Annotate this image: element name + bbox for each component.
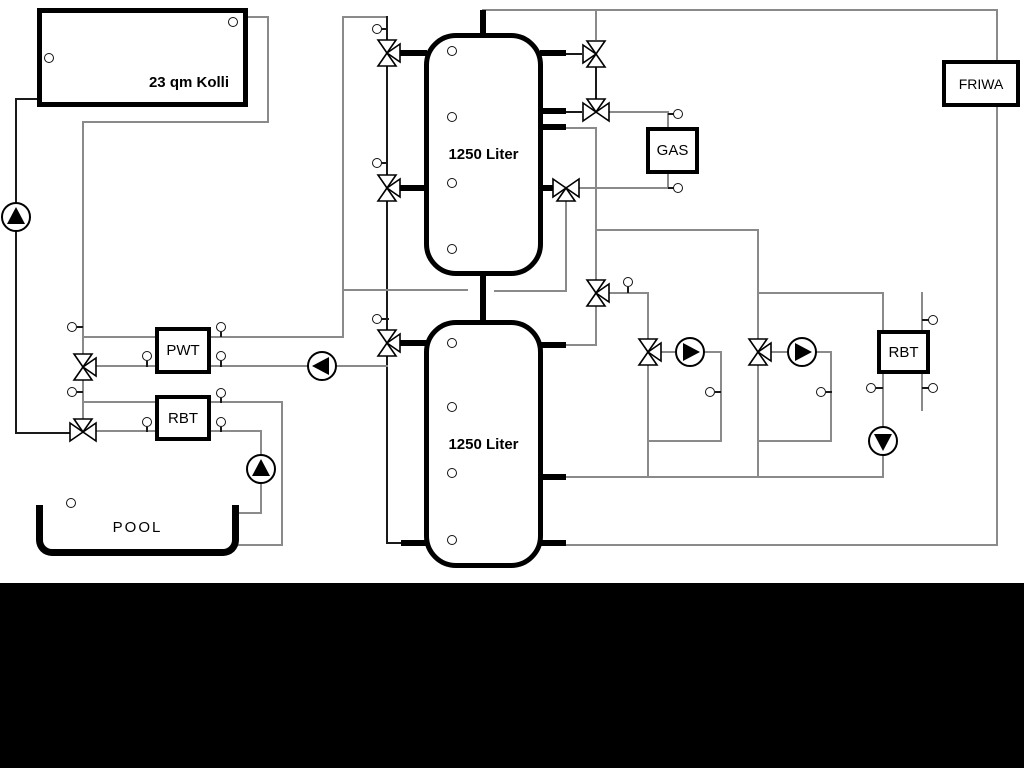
sensor-stem — [627, 287, 629, 293]
pool-pump-icon — [245, 453, 277, 485]
pipe — [595, 306, 597, 346]
tank-stub — [540, 474, 566, 480]
pipe — [757, 229, 759, 339]
sensor-port-icon — [866, 383, 876, 393]
pipe — [15, 432, 70, 434]
three-way-valve-icon — [582, 98, 610, 126]
sensor-stem — [220, 398, 222, 403]
tank-sensor-icon — [447, 402, 457, 412]
sensor-port-icon — [372, 24, 382, 34]
pipe — [565, 201, 567, 292]
sensor-stem — [220, 427, 222, 432]
tank-stub — [540, 540, 566, 546]
black-footer-band — [0, 583, 1024, 768]
buffer-tank-lower: 1250 Liter — [424, 320, 543, 568]
tank-stub — [398, 340, 427, 346]
sensor-port-icon — [928, 315, 938, 325]
sensor-port-icon — [705, 387, 715, 397]
sensor-port-icon — [228, 17, 238, 27]
pipe — [82, 336, 344, 338]
friwa-box: FRIWA — [942, 60, 1020, 107]
three-way-valve-icon — [69, 353, 97, 381]
sensor-stem — [77, 326, 83, 328]
solar-collector-box: 23 qm Kolli — [37, 8, 248, 107]
tank-stub — [398, 185, 427, 191]
tank-stub — [540, 108, 566, 114]
gas-label: GAS — [657, 142, 689, 159]
pipe — [609, 292, 649, 294]
pipe — [564, 53, 582, 55]
sensor-stem — [382, 162, 388, 164]
pipe — [96, 365, 388, 367]
sensor-port-icon — [142, 417, 152, 427]
pipe — [342, 289, 468, 291]
tank-sensor-icon — [447, 244, 457, 254]
sensor-port-icon — [816, 387, 826, 397]
three-way-valve-icon — [744, 338, 772, 366]
tank-stub — [540, 342, 566, 348]
sensor-port-icon — [142, 351, 152, 361]
pipe — [996, 105, 998, 546]
sensor-port-icon — [372, 158, 382, 168]
pipe — [771, 351, 787, 353]
pool-label: POOL — [113, 519, 163, 536]
pwt-secondary-pump-icon — [306, 350, 338, 382]
sensor-stem — [826, 391, 832, 393]
buffer-tank-upper: 1250 Liter — [424, 33, 543, 276]
pipe — [757, 440, 832, 442]
gas-boiler-box: GAS — [646, 127, 699, 174]
pwt-label: PWT — [166, 342, 199, 359]
sensor-stem — [715, 391, 721, 393]
sensor-port-icon — [67, 322, 77, 332]
rbt-right-box: RBT — [877, 330, 930, 374]
lower-tank-label: 1250 Liter — [448, 436, 518, 453]
three-way-valve-icon — [634, 338, 662, 366]
rbt-right-label: RBT — [889, 344, 919, 361]
tank-sensor-icon — [447, 468, 457, 478]
pipe — [579, 187, 669, 189]
pipe — [595, 229, 759, 231]
pipe — [720, 351, 722, 442]
rbt-right-pump-icon — [867, 425, 899, 457]
pipe — [238, 512, 262, 514]
rbt-left-box: RBT — [155, 395, 211, 441]
pwt-heat-exchanger-box: PWT — [155, 327, 211, 374]
sensor-stem — [220, 361, 222, 367]
tank-sensor-icon — [447, 112, 457, 122]
upper-tank-label: 1250 Liter — [448, 146, 518, 163]
pipe — [267, 16, 269, 123]
sensor-port-icon — [216, 417, 226, 427]
pool-temp-sensor-icon — [66, 498, 76, 508]
collector-label: 23 qm Kolli — [149, 74, 229, 91]
pipe — [757, 365, 759, 478]
sensor-stem — [876, 387, 883, 389]
pipe — [565, 344, 597, 346]
pipe — [494, 290, 567, 292]
sensor-stem — [146, 361, 148, 367]
three-way-valve-icon — [373, 174, 401, 202]
pipe — [15, 98, 17, 434]
sensor-port-icon — [928, 383, 938, 393]
pool-basin: POOL — [36, 505, 239, 556]
tank-stub — [480, 272, 486, 324]
three-way-valve-icon — [582, 40, 610, 68]
three-way-valve-icon — [582, 279, 610, 307]
three-way-valve-icon — [373, 329, 401, 357]
pipe — [661, 351, 675, 353]
sensor-port-icon — [67, 387, 77, 397]
tank-sensor-icon — [447, 535, 457, 545]
pipe — [281, 401, 283, 546]
sensor-stem — [220, 332, 222, 337]
sensor-port-icon — [372, 314, 382, 324]
pipe — [882, 292, 884, 331]
pipe — [565, 127, 597, 129]
pipe — [386, 16, 388, 543]
tank-stub — [398, 50, 427, 56]
tank-sensor-icon — [447, 178, 457, 188]
circuit-2-pump-icon — [786, 336, 818, 368]
three-way-valve-icon — [373, 39, 401, 67]
sensor-port-icon — [216, 388, 226, 398]
pipe — [830, 351, 832, 442]
pipe — [238, 544, 283, 546]
circuit-1-pump-icon — [674, 336, 706, 368]
pipe — [647, 292, 649, 339]
pipe — [82, 121, 269, 123]
pipe — [595, 127, 597, 281]
sensor-port-icon — [673, 183, 683, 193]
pipe — [595, 67, 597, 99]
three-way-valve-icon — [69, 418, 97, 446]
friwa-label: FRIWA — [959, 76, 1004, 92]
tank-stub — [542, 124, 566, 130]
pipe — [647, 440, 722, 442]
pipe — [757, 292, 884, 294]
tank-stub — [540, 50, 566, 56]
sensor-stem — [146, 427, 148, 432]
sensor-port-icon — [623, 277, 633, 287]
sensor-stem — [382, 28, 388, 30]
pipe — [565, 476, 884, 478]
tank-sensor-icon — [447, 338, 457, 348]
pipe — [647, 365, 649, 478]
tank-sensor-icon — [447, 46, 457, 56]
sensor-port-icon — [673, 109, 683, 119]
pipe — [996, 9, 998, 62]
pipe — [482, 9, 997, 11]
sensor-stem — [77, 391, 83, 393]
solar-pump-icon — [0, 201, 32, 233]
sensor-stem — [382, 318, 389, 320]
three-way-valve-icon — [552, 174, 580, 202]
diagram-canvas: 23 qm Kolli 1250 Liter 1250 Liter PWT RB… — [0, 0, 1024, 768]
pipe — [595, 9, 597, 40]
sensor-port-icon — [216, 322, 226, 332]
sensor-port-icon — [44, 53, 54, 63]
rbt-left-label: RBT — [168, 410, 198, 427]
tank-stub — [401, 540, 427, 546]
pipe — [609, 111, 669, 113]
sensor-port-icon — [216, 351, 226, 361]
pipe — [566, 544, 998, 546]
pipe — [342, 16, 388, 18]
